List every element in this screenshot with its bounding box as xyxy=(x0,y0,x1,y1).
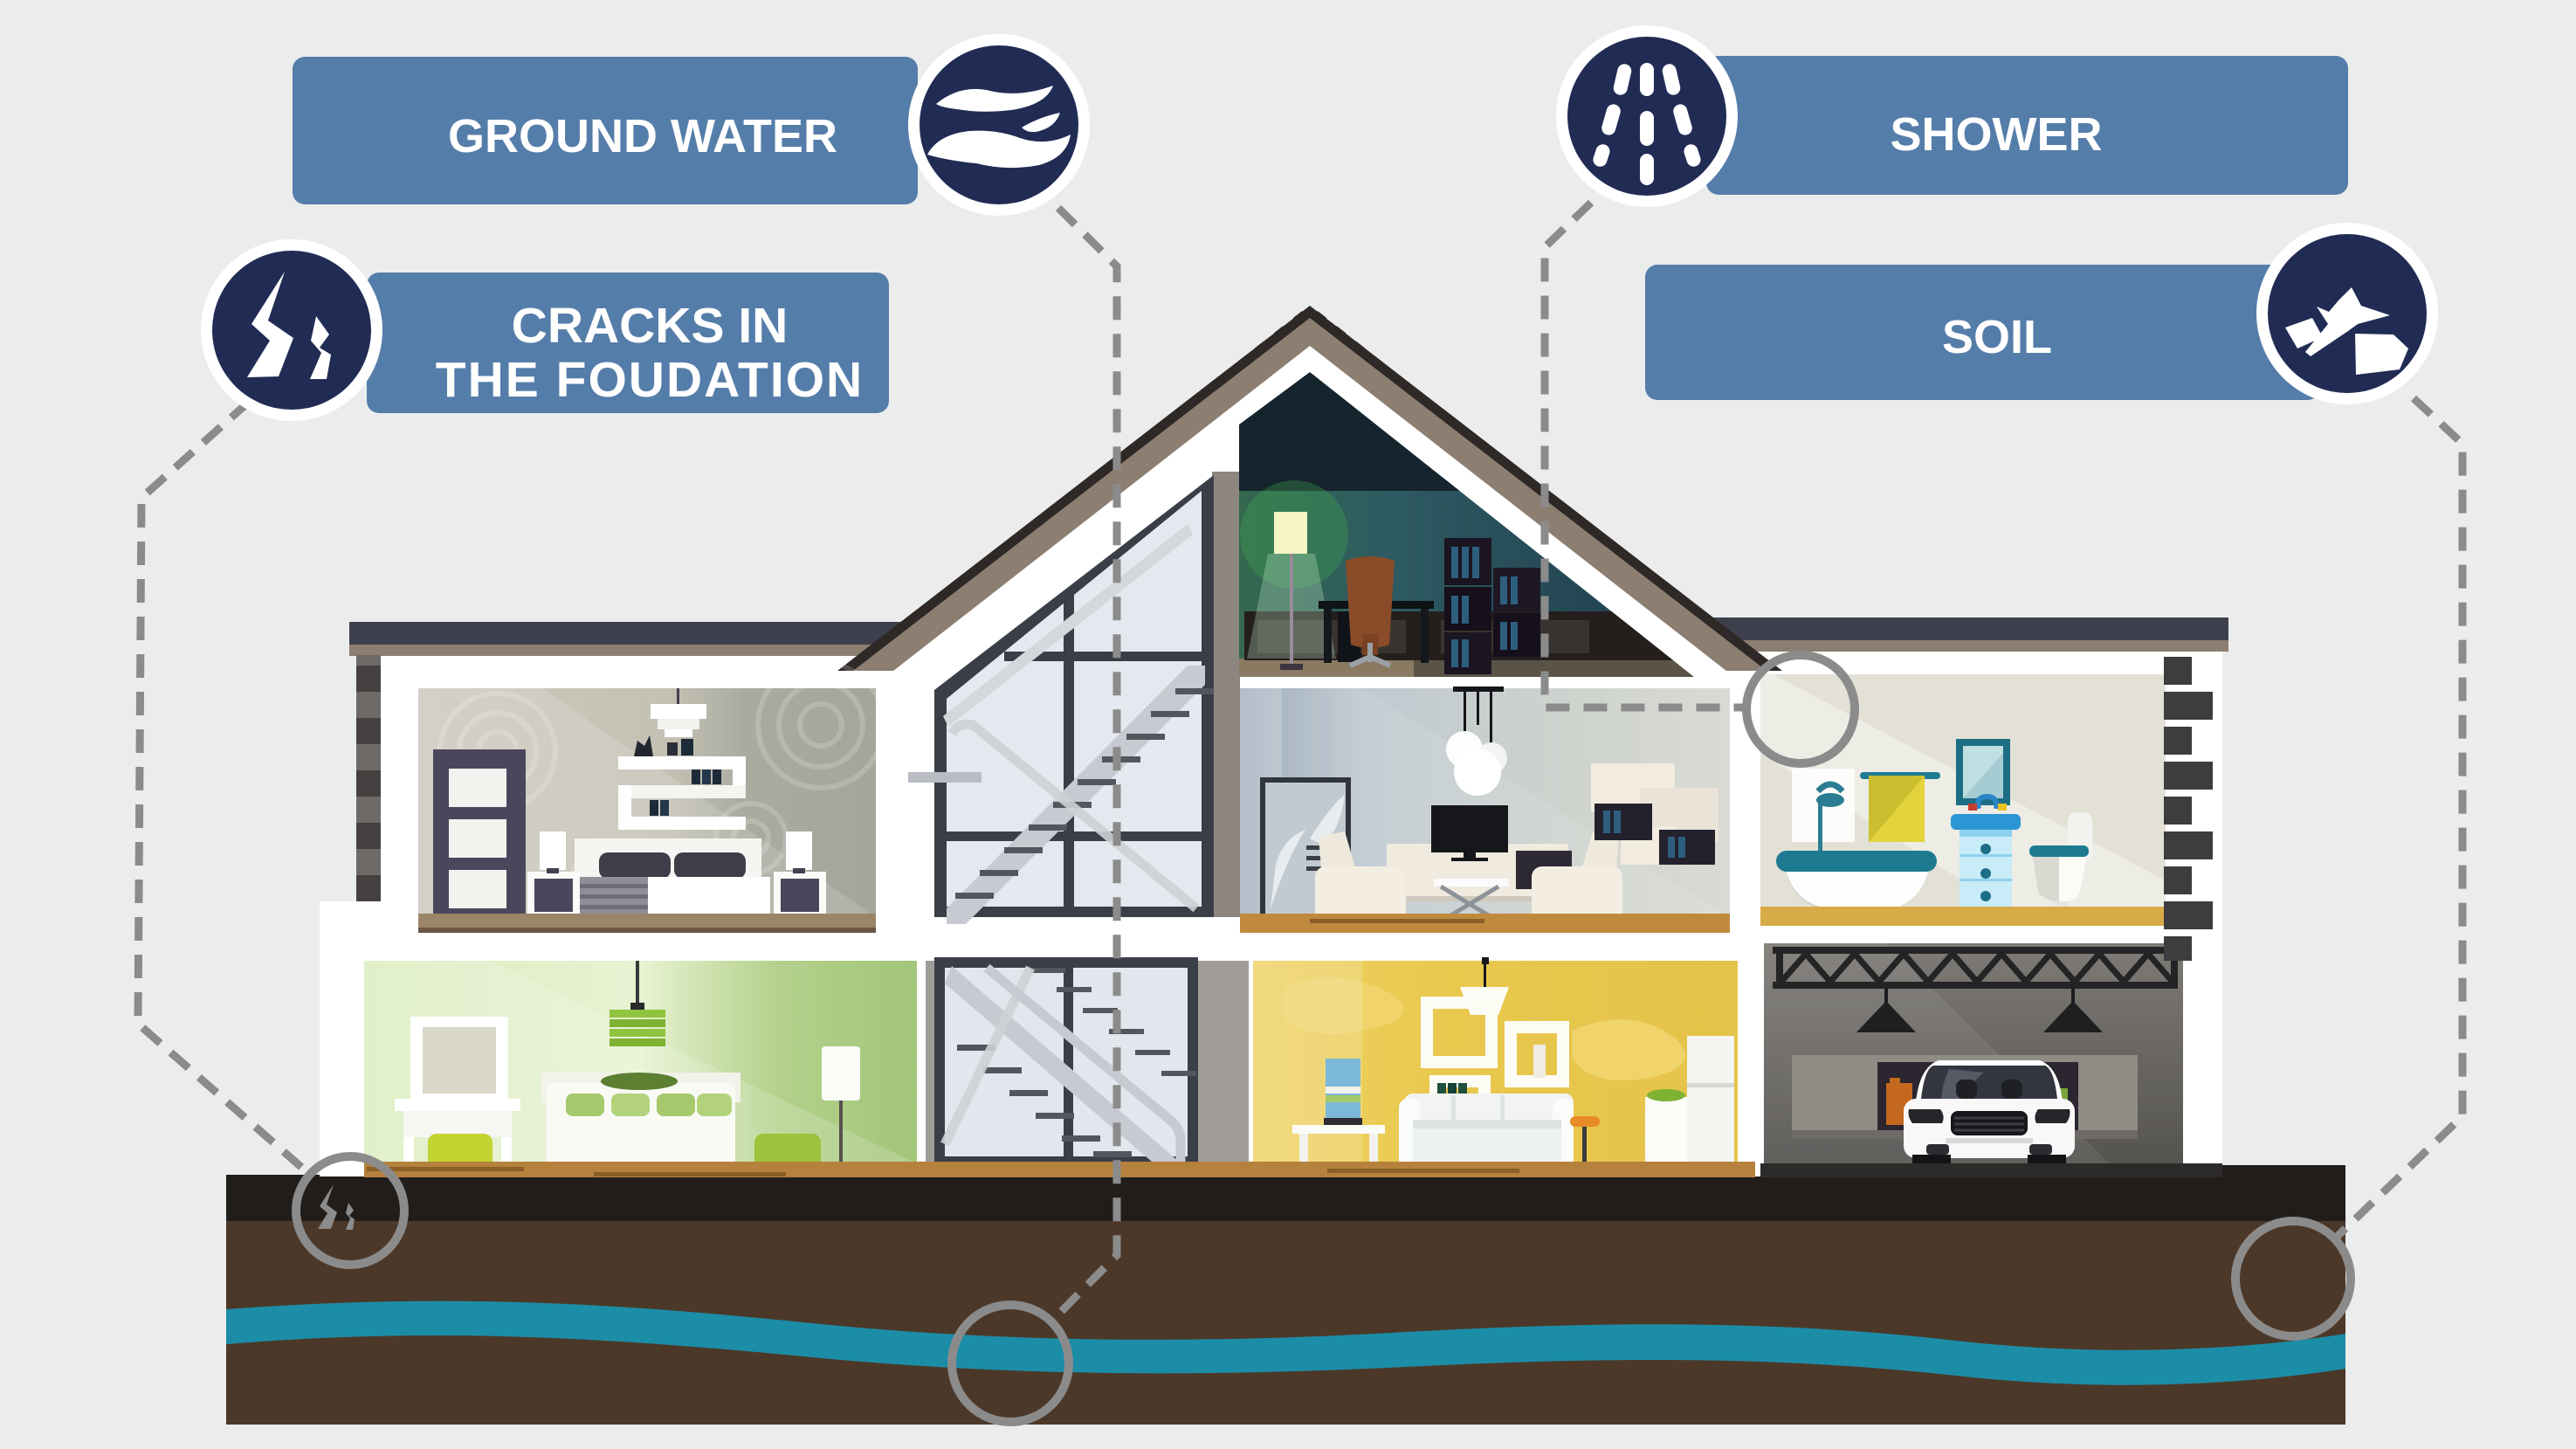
svg-text:THE FOUDATION: THE FOUDATION xyxy=(436,352,864,408)
svg-text:SHOWER: SHOWER xyxy=(1891,108,2103,161)
svg-text:CRACKS IN: CRACKS IN xyxy=(512,298,789,354)
svg-text:GROUND WATER: GROUND WATER xyxy=(448,110,837,162)
svg-text:SOIL: SOIL xyxy=(1942,311,2052,363)
